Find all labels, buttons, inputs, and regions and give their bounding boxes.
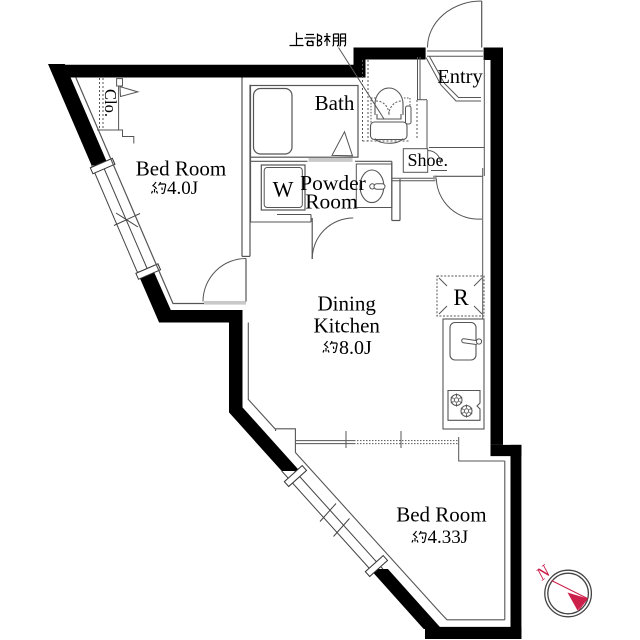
svg-text:Entry: Entry [437,66,483,88]
svg-text:R: R [453,285,469,310]
svg-text:Dining: Dining [318,292,377,316]
svg-text:Bed Room: Bed Room [396,503,486,527]
svg-text:Clo.: Clo. [101,89,120,117]
svg-text:Room: Room [305,190,358,214]
svg-text:4.33J: 4.33J [428,527,469,548]
svg-text:Bed Room: Bed Room [136,157,226,181]
svg-text:Kitchen: Kitchen [313,314,380,338]
svg-text:4.0J: 4.0J [167,178,198,199]
svg-text:Bath: Bath [315,91,355,115]
svg-text:Shoe.: Shoe. [407,150,448,170]
svg-text:W: W [273,177,294,202]
svg-text:8.0J: 8.0J [339,337,372,359]
